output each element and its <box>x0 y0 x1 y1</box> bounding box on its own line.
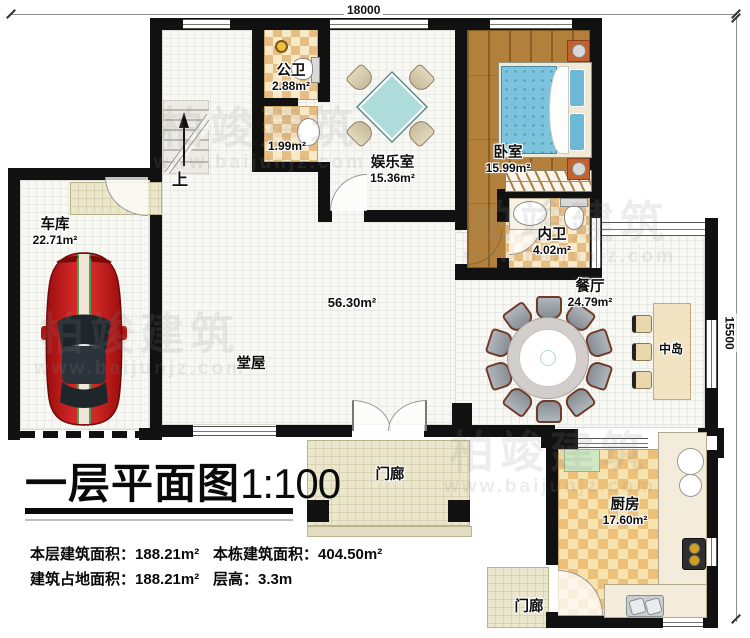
sink-bowl <box>628 597 646 615</box>
window <box>706 538 717 566</box>
stat-label: 层高： <box>213 571 258 588</box>
garage-door-opening <box>20 431 139 438</box>
stat-value: 188.21m² <box>135 571 199 588</box>
wall <box>497 197 509 222</box>
room-label-kitchen: 厨房 17.60m² <box>585 498 665 527</box>
stat-label: 本栋建筑面积： <box>213 546 318 563</box>
window <box>490 19 572 29</box>
wall <box>558 437 578 449</box>
room-label-public-bath: 公卫 2.88m² <box>259 64 323 93</box>
room-label-inner-bath: 内卫 4.02m² <box>518 228 586 257</box>
stat-value: 3.3m <box>258 571 292 588</box>
front-porch-step <box>307 526 472 537</box>
wall <box>150 18 162 180</box>
island-label: 中岛 <box>653 343 689 356</box>
dimension-top-label: 18000 <box>344 3 383 17</box>
stat-value: 188.21m² <box>135 546 199 563</box>
wall <box>546 437 558 565</box>
room-label-hall-area: 56.30m² <box>315 296 389 310</box>
chair <box>345 117 376 148</box>
wall <box>324 210 332 222</box>
toilet <box>564 206 584 230</box>
car-icon <box>40 250 128 428</box>
wall <box>252 98 298 106</box>
stat-label: 本层建筑面积： <box>30 546 135 563</box>
wall <box>455 18 467 230</box>
room-label-bedroom: 卧室 15.99m² <box>468 146 548 175</box>
lazy-susan <box>540 350 556 366</box>
staircase-drawing <box>163 100 209 174</box>
ceiling-lamp <box>275 40 288 53</box>
sink-bowl <box>644 597 662 615</box>
stat-label: 建筑占地面积： <box>30 571 135 588</box>
bar-stool <box>632 343 652 361</box>
wall <box>8 428 20 440</box>
wall <box>276 425 352 437</box>
floor-plan-canvas: 18000 15500 <box>0 0 750 638</box>
bar-stool <box>632 315 652 333</box>
room-label-entertainment: 娱乐室 15.36m² <box>350 156 435 185</box>
stat-value: 404.50m² <box>318 546 382 563</box>
bed-pillow <box>569 69 585 107</box>
window <box>663 617 703 627</box>
window <box>706 320 717 388</box>
stairs-up-label: 上 <box>168 172 192 190</box>
wall <box>497 258 509 268</box>
room-label-garage: 车库 22.71m² <box>15 218 95 247</box>
window <box>602 222 705 236</box>
stat-story-height: 层高：3.3m <box>213 568 292 589</box>
dimension-right-label: 15500 <box>723 313 737 352</box>
window <box>183 19 230 29</box>
room-label-side-porch: 门廊 <box>497 600 561 616</box>
wall <box>424 425 555 437</box>
round-sink <box>677 448 704 475</box>
chair <box>536 400 562 423</box>
title-underline-thin <box>25 519 293 521</box>
bar-stool <box>632 371 652 389</box>
door-mat <box>564 449 600 472</box>
plan-title-scale: 1:100 <box>240 460 340 508</box>
nightstand <box>567 158 590 180</box>
room-label-dining: 餐厅 24.79m² <box>550 280 630 309</box>
wall <box>150 180 162 425</box>
wash-basin <box>513 201 547 226</box>
stat-total-area: 本栋建筑面积：404.50m² <box>213 543 382 564</box>
car <box>40 250 128 428</box>
window <box>591 218 601 268</box>
game-table-set <box>345 60 435 150</box>
round-sink <box>679 474 702 497</box>
staircase <box>163 100 209 174</box>
nightstand <box>567 40 590 62</box>
window <box>330 19 428 29</box>
wall <box>150 425 193 437</box>
plan-title-text: 一层平面图 <box>25 450 240 511</box>
stat-floor-area: 本层建筑面积：188.21m² <box>30 543 199 564</box>
title-underline <box>25 508 293 514</box>
bed-sheet <box>549 66 569 154</box>
wall <box>364 210 467 222</box>
room-label-hall: 堂屋 <box>215 357 287 373</box>
wall <box>452 403 472 437</box>
sliding-glass-door <box>578 438 648 448</box>
side-porch-floor <box>487 567 549 628</box>
room-label-washroom: 1.99m² <box>258 140 316 153</box>
burner <box>689 555 700 566</box>
chair <box>345 63 376 94</box>
burner <box>689 543 700 554</box>
chair <box>405 63 436 94</box>
porch-column <box>448 500 470 522</box>
wall <box>8 168 20 440</box>
gas-stove <box>682 538 706 570</box>
stat-footprint: 建筑占地面积：188.21m² <box>30 568 199 589</box>
double-sink <box>626 595 664 617</box>
plan-title: 一层平面图1:100 <box>25 450 340 511</box>
bed-pillow <box>569 113 585 151</box>
window <box>193 426 276 436</box>
room-label-front-porch: 门廊 <box>354 468 426 484</box>
bed <box>498 62 592 158</box>
